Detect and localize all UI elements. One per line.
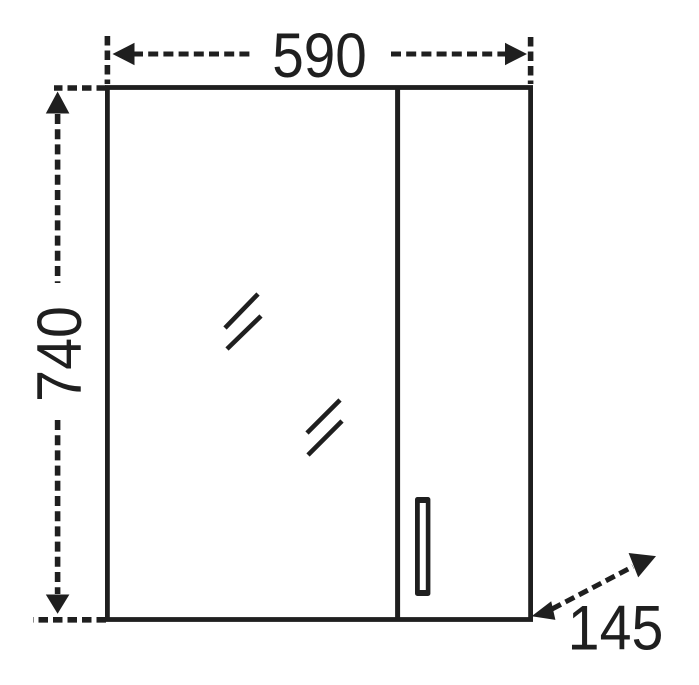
svg-text:145: 145 bbox=[568, 592, 664, 663]
svg-text:740: 740 bbox=[23, 306, 94, 402]
svg-text:590: 590 bbox=[272, 20, 367, 90]
